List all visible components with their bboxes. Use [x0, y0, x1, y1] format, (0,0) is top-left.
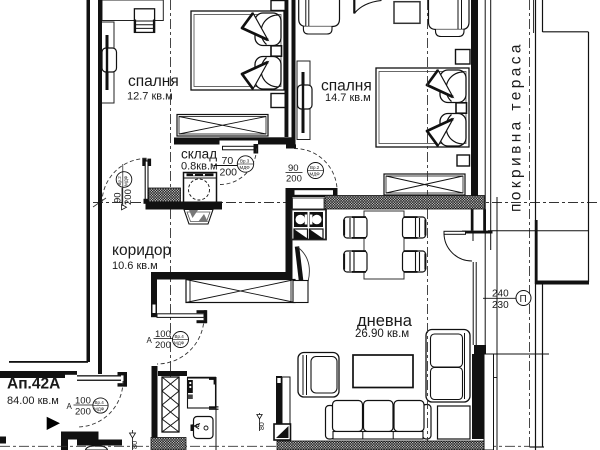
svg-text:коридор: коридор [112, 242, 171, 259]
svg-text:склад: склад [181, 147, 217, 162]
svg-text:14.7 кв.м: 14.7 кв.м [325, 92, 371, 104]
svg-text:Вр.2: Вр.2 [117, 176, 122, 186]
svg-text:200: 200 [155, 340, 171, 351]
svg-text:Вр.3: Вр.3 [240, 159, 250, 164]
svg-text:А: А [147, 336, 153, 345]
svg-text:0.8кв.м: 0.8кв.м [181, 161, 218, 173]
svg-text:200: 200 [123, 189, 134, 205]
svg-text:Вр.4: Вр.4 [175, 334, 185, 339]
svg-text:200: 200 [75, 407, 91, 418]
svg-text:МДФ: МДФ [94, 407, 105, 412]
svg-text:Вр.4: Вр.4 [95, 400, 105, 405]
svg-text:Вр.2: Вр.2 [310, 165, 320, 170]
svg-text:МДФ: МДФ [174, 341, 185, 346]
svg-text:МДФ: МДФ [240, 165, 251, 170]
svg-text:84.00 кв.м: 84.00 кв.м [7, 395, 59, 407]
svg-text:МДФ: МДФ [310, 172, 321, 177]
svg-text:26.90 кв.м: 26.90 кв.м [355, 328, 409, 340]
svg-text:230: 230 [492, 300, 509, 311]
svg-text:12.7 кв.м: 12.7 кв.м [127, 91, 173, 103]
svg-text:80: 80 [130, 441, 139, 449]
svg-text:200: 200 [286, 174, 302, 185]
svg-text:П: П [520, 294, 527, 305]
svg-text:80: 80 [259, 422, 266, 430]
svg-text:МДФ: МДФ [124, 175, 129, 186]
svg-text:А: А [67, 402, 73, 411]
svg-text:спалня: спалня [128, 73, 179, 90]
svg-text:Ап.42А: Ап.42А [7, 376, 60, 393]
svg-text:покривна тераса: покривна тераса [508, 41, 525, 212]
svg-text:200: 200 [220, 167, 238, 179]
svg-text:10.6 кв.м: 10.6 кв.м [112, 260, 158, 272]
